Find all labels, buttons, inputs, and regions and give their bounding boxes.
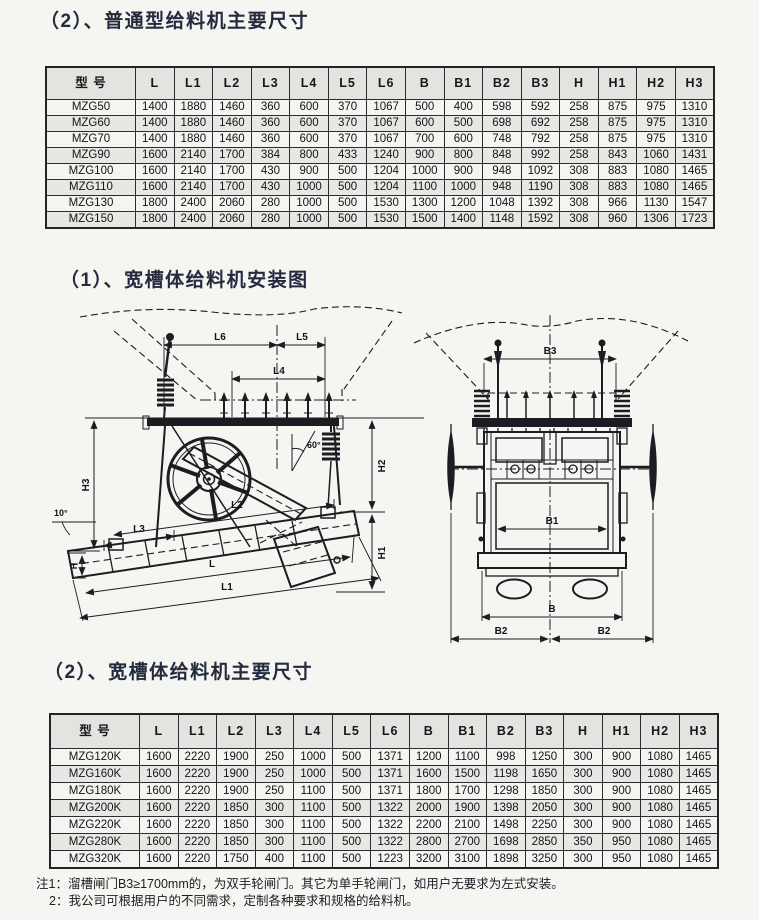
value-cell: 1000 (405, 164, 444, 180)
value-cell: 1465 (675, 180, 714, 196)
value-cell: 300 (255, 800, 294, 817)
value-cell: 1310 (675, 132, 714, 148)
value-cell: 1200 (409, 749, 448, 766)
value-cell: 308 (560, 196, 599, 212)
value-cell: 1100 (294, 851, 333, 869)
table-row: MZG280K160022201850300110050013222800270… (50, 834, 718, 851)
value-cell: 1130 (637, 196, 676, 212)
front-view: B3 (414, 315, 688, 643)
value-cell: 1298 (487, 783, 526, 800)
value-cell: 900 (602, 766, 641, 783)
column-header: L2 (217, 714, 256, 749)
column-header: B2 (483, 67, 522, 100)
value-cell: 1600 (409, 766, 448, 783)
value-cell: 1250 (525, 749, 564, 766)
dim-label-h: H (69, 563, 79, 570)
value-cell: 875 (598, 100, 637, 116)
value-cell: 3200 (409, 851, 448, 869)
value-cell: 948 (483, 180, 522, 196)
value-cell: 360 (251, 100, 290, 116)
value-cell: 792 (521, 132, 560, 148)
value-cell: 1600 (136, 148, 175, 164)
dim-label-l1: L1 (221, 582, 233, 593)
value-cell: 900 (602, 749, 641, 766)
value-cell: 258 (560, 100, 599, 116)
value-cell: 400 (255, 851, 294, 869)
value-cell: 1850 (217, 834, 256, 851)
base-and-feet (478, 553, 626, 599)
value-cell: 1465 (679, 800, 718, 817)
value-cell: 300 (564, 766, 603, 783)
value-cell: 1080 (641, 817, 680, 834)
column-header: L1 (178, 714, 217, 749)
value-cell: 1700 (213, 148, 252, 164)
value-cell: 1850 (217, 817, 256, 834)
angle-60-annotation: 60° (292, 431, 321, 471)
value-cell: 1080 (641, 800, 680, 817)
table-row: MZG160K160022201900250100050013711600150… (50, 766, 718, 783)
value-cell: 1600 (136, 164, 175, 180)
value-cell: 370 (328, 100, 367, 116)
footnotes: 注1：溜槽闸门B3≥1700mm的，为双手轮闸门。其它为单手轮闸门，如用户无要求… (36, 876, 759, 911)
table-row: MZG6014001880146036060037010676005006986… (46, 116, 714, 132)
value-cell: 1850 (525, 783, 564, 800)
value-cell: 1600 (140, 851, 179, 869)
value-cell: 1898 (487, 851, 526, 869)
table-row: MZG7014001880146036060037010677006007487… (46, 132, 714, 148)
value-cell: 1880 (174, 132, 213, 148)
value-cell: 875 (598, 132, 637, 148)
value-cell: 1500 (448, 766, 487, 783)
value-cell: 1600 (140, 766, 179, 783)
value-cell: 370 (328, 116, 367, 132)
value-cell: 300 (564, 851, 603, 869)
value-cell: 300 (564, 817, 603, 834)
value-cell: 1900 (217, 749, 256, 766)
value-cell: 950 (602, 851, 641, 869)
value-cell: 300 (564, 783, 603, 800)
angle-10-label: 10° (54, 508, 68, 518)
value-cell: 1900 (448, 800, 487, 817)
value-cell: 250 (255, 749, 294, 766)
value-cell: 350 (564, 834, 603, 851)
handwheel-left-front (447, 424, 484, 510)
value-cell: 992 (521, 148, 560, 164)
value-cell: 2220 (178, 749, 217, 766)
value-cell: 2400 (174, 196, 213, 212)
value-cell: 1080 (641, 749, 680, 766)
value-cell: 1000 (290, 180, 329, 196)
value-cell: 2850 (525, 834, 564, 851)
column-header: B3 (525, 714, 564, 749)
value-cell: 300 (564, 800, 603, 817)
table-row: MZG1301800240020602801000500153013001200… (46, 196, 714, 212)
value-cell: 300 (564, 749, 603, 766)
handwheel-right-front (620, 424, 657, 510)
value-cell: 2700 (448, 834, 487, 851)
value-cell: 1500 (405, 212, 444, 229)
value-cell: 1080 (637, 164, 676, 180)
model-cell: MZG320K (50, 851, 140, 869)
value-cell: 500 (332, 817, 371, 834)
value-cell: 1400 (136, 100, 175, 116)
table-row: MZG220K160022201850300110050013222200210… (50, 817, 718, 834)
value-cell: 1100 (294, 800, 333, 817)
value-cell: 843 (598, 148, 637, 164)
note-line-2: 2：我公司可根据用户的不同需求，定制各种要求和规格的给料机。 (49, 893, 759, 910)
value-cell: 950 (602, 834, 641, 851)
angle-60-label: 60° (307, 440, 321, 450)
value-cell: 698 (483, 116, 522, 132)
suspension-spring-left (157, 333, 174, 418)
dim-label-l6: L6 (214, 332, 226, 343)
side-dimension-lines: H3 H2 H1 H 10° (52, 421, 388, 621)
value-cell: 900 (602, 783, 641, 800)
value-cell: 2400 (174, 212, 213, 229)
value-cell: 1100 (294, 783, 333, 800)
table-row: MZG1101600214017004301000500120411001000… (46, 180, 714, 196)
value-cell: 370 (328, 132, 367, 148)
value-cell: 1600 (140, 800, 179, 817)
value-cell: 1092 (521, 164, 560, 180)
value-cell: 384 (251, 148, 290, 164)
value-cell: 1600 (140, 783, 179, 800)
value-cell: 598 (483, 100, 522, 116)
model-cell: MZG220K (50, 817, 140, 834)
value-cell: 900 (602, 800, 641, 817)
value-cell: 800 (290, 148, 329, 164)
value-cell: 300 (255, 817, 294, 834)
value-cell: 1900 (217, 766, 256, 783)
value-cell: 1592 (521, 212, 560, 229)
value-cell: 1800 (136, 212, 175, 229)
value-cell: 975 (637, 132, 676, 148)
value-cell: 308 (560, 212, 599, 229)
dim-label-l5: L5 (296, 332, 308, 343)
value-cell: 1300 (405, 196, 444, 212)
value-cell: 280 (251, 212, 290, 229)
value-cell: 1400 (136, 132, 175, 148)
column-header: H (560, 67, 599, 100)
value-cell: 1200 (444, 196, 483, 212)
column-header: H3 (679, 714, 718, 749)
value-cell: 1392 (521, 196, 560, 212)
value-cell: 883 (598, 164, 637, 180)
value-cell: 975 (637, 116, 676, 132)
value-cell: 500 (444, 116, 483, 132)
value-cell: 1310 (675, 116, 714, 132)
value-cell: 500 (332, 766, 371, 783)
value-cell: 1100 (448, 749, 487, 766)
value-cell: 1530 (367, 212, 406, 229)
value-cell: 430 (251, 164, 290, 180)
table-row: MZG120K160022201900250100050013711200110… (50, 749, 718, 766)
table-row: MZG9016002140170038480043312409008008489… (46, 148, 714, 164)
value-cell: 1465 (679, 749, 718, 766)
column-header: L4 (294, 714, 333, 749)
mounting-plate-front (472, 418, 632, 432)
value-cell: 280 (251, 196, 290, 212)
dim-label-b: B (548, 604, 555, 615)
column-header: 型 号 (46, 67, 136, 100)
value-cell: 2250 (525, 817, 564, 834)
column-header: H3 (675, 67, 714, 100)
value-cell: 1880 (174, 100, 213, 116)
value-cell: 250 (255, 783, 294, 800)
value-cell: 2220 (178, 766, 217, 783)
value-cell: 1198 (487, 766, 526, 783)
value-cell: 1750 (217, 851, 256, 869)
dim-label-b3: B3 (544, 346, 557, 357)
value-cell: 500 (328, 212, 367, 229)
model-cell: MZG60 (46, 116, 136, 132)
value-cell: 1060 (637, 148, 676, 164)
value-cell: 500 (332, 834, 371, 851)
value-cell: 1000 (290, 196, 329, 212)
table-row: MZG1001600214017004309005001204100090094… (46, 164, 714, 180)
model-cell: MZG50 (46, 100, 136, 116)
value-cell: 1080 (641, 834, 680, 851)
column-header: L1 (174, 67, 213, 100)
value-cell: 500 (328, 196, 367, 212)
value-cell: 2140 (174, 164, 213, 180)
dim-label-b1: B1 (546, 516, 559, 527)
b2-dimensions: B2 B2 (451, 513, 653, 643)
column-header: L4 (290, 67, 329, 100)
value-cell: 848 (483, 148, 522, 164)
ordinary-feeder-dimensions-table: 型 号LL1L2L3L4L5L6BB1B2B3HH1H2H3MZG5014001… (45, 66, 715, 229)
column-header: B3 (521, 67, 560, 100)
value-cell: 2220 (178, 851, 217, 869)
value-cell: 500 (328, 164, 367, 180)
value-cell: 250 (255, 766, 294, 783)
value-cell: 1465 (679, 766, 718, 783)
model-cell: MZG180K (50, 783, 140, 800)
value-cell: 1700 (448, 783, 487, 800)
wide-trough-feeder-dimensions-table: 型 号LL1L2L3L4L5L6BB1B2B3HH1H2H3MZG120K160… (49, 713, 719, 869)
value-cell: 308 (560, 164, 599, 180)
value-cell: 1880 (174, 116, 213, 132)
value-cell: 600 (444, 132, 483, 148)
value-cell: 1100 (405, 180, 444, 196)
value-cell: 1204 (367, 180, 406, 196)
value-cell: 1700 (213, 164, 252, 180)
value-cell: 2000 (409, 800, 448, 817)
value-cell: 1204 (367, 164, 406, 180)
value-cell: 1398 (487, 800, 526, 817)
value-cell: 592 (521, 100, 560, 116)
value-cell: 2140 (174, 180, 213, 196)
value-cell: 300 (255, 834, 294, 851)
value-cell: 360 (251, 116, 290, 132)
dim-label-l4: L4 (273, 366, 285, 377)
value-cell: 1306 (637, 212, 676, 229)
value-cell: 308 (560, 180, 599, 196)
value-cell: 2220 (178, 817, 217, 834)
value-cell: 2100 (448, 817, 487, 834)
value-cell: 1460 (213, 100, 252, 116)
value-cell: 900 (290, 164, 329, 180)
column-header: H1 (598, 67, 637, 100)
dim-label-l: L (209, 559, 215, 570)
value-cell: 2220 (178, 783, 217, 800)
value-cell: 2220 (178, 834, 217, 851)
dim-label-h2: H2 (377, 459, 388, 472)
value-cell: 960 (598, 212, 637, 229)
column-header: B (405, 67, 444, 100)
column-header: H1 (602, 714, 641, 749)
header-row: 型 号LL1L2L3L4L5L6BB1B2B3HH1H2H3 (50, 714, 718, 749)
model-cell: MZG150 (46, 212, 136, 229)
section-title-installation-diagram: （1）、宽槽体给料机安装图 (0, 229, 759, 293)
dim-label-b2-right: B2 (598, 626, 611, 637)
value-cell: 1400 (444, 212, 483, 229)
value-cell: 1371 (371, 749, 410, 766)
discharge-chute (274, 527, 340, 587)
value-cell: 1465 (679, 851, 718, 869)
header-row: 型 号LL1L2L3L4L5L6BB1B2B3HH1H2H3 (46, 67, 714, 100)
value-cell: 1000 (294, 766, 333, 783)
dim-label-b2-left: B2 (495, 626, 508, 637)
column-header: L3 (255, 714, 294, 749)
value-cell: 1498 (487, 817, 526, 834)
value-cell: 883 (598, 180, 637, 196)
value-cell: 1240 (367, 148, 406, 164)
value-cell: 1322 (371, 834, 410, 851)
column-header: H2 (641, 714, 680, 749)
value-cell: 1310 (675, 100, 714, 116)
column-header: B (409, 714, 448, 749)
b3-dimension: B3 (484, 346, 616, 393)
value-cell: 1067 (367, 100, 406, 116)
value-cell: 875 (598, 116, 637, 132)
value-cell: 1850 (217, 800, 256, 817)
value-cell: 430 (251, 180, 290, 196)
value-cell: 1148 (483, 212, 522, 229)
model-cell: MZG110 (46, 180, 136, 196)
feeder-body-front (448, 432, 656, 553)
catalog-page: （2）、普通型给料机主要尺寸 型 号LL1L2L3L4L5L6BB1B2B3HH… (0, 0, 759, 920)
model-cell: MZG120K (50, 749, 140, 766)
model-cell: MZG90 (46, 148, 136, 164)
value-cell: 1000 (444, 180, 483, 196)
value-cell: 500 (332, 783, 371, 800)
value-cell: 1650 (525, 766, 564, 783)
value-cell: 800 (444, 148, 483, 164)
value-cell: 1530 (367, 196, 406, 212)
value-cell: 258 (560, 148, 599, 164)
value-cell: 1067 (367, 132, 406, 148)
value-cell: 600 (290, 132, 329, 148)
column-header: L5 (328, 67, 367, 100)
value-cell: 1080 (637, 180, 676, 196)
model-cell: MZG130 (46, 196, 136, 212)
value-cell: 900 (405, 148, 444, 164)
value-cell: 2220 (178, 800, 217, 817)
value-cell: 1000 (294, 749, 333, 766)
dim-label-l2: L2 (231, 500, 243, 511)
column-header: H2 (637, 67, 676, 100)
value-cell: 3250 (525, 851, 564, 869)
value-cell: 1322 (371, 817, 410, 834)
value-cell: 1723 (675, 212, 714, 229)
column-header: L3 (251, 67, 290, 100)
model-cell: MZG200K (50, 800, 140, 817)
mounting-plate-side (85, 416, 424, 429)
dim-label-h3: H3 (81, 478, 92, 491)
value-cell: 1600 (136, 180, 175, 196)
value-cell: 998 (487, 749, 526, 766)
value-cell: 2050 (525, 800, 564, 817)
value-cell: 500 (328, 180, 367, 196)
value-cell: 1080 (641, 783, 680, 800)
column-header: L2 (213, 67, 252, 100)
value-cell: 1048 (483, 196, 522, 212)
value-cell: 900 (444, 164, 483, 180)
b1-dimension: B1 (498, 516, 606, 529)
value-cell: 900 (602, 817, 641, 834)
value-cell: 2140 (174, 148, 213, 164)
model-cell: MZG70 (46, 132, 136, 148)
column-header: L (140, 714, 179, 749)
column-header: B1 (444, 67, 483, 100)
note-line-1: 注1：溜槽闸门B3≥1700mm的，为双手轮闸门。其它为单手轮闸门，如用户无要求… (36, 876, 759, 893)
hopper-outline-side (80, 307, 402, 469)
value-cell: 600 (290, 116, 329, 132)
value-cell: 500 (332, 851, 371, 869)
value-cell: 1067 (367, 116, 406, 132)
value-cell: 600 (290, 100, 329, 116)
column-header: B2 (487, 714, 526, 749)
value-cell: 1800 (409, 783, 448, 800)
value-cell: 2060 (213, 212, 252, 229)
value-cell: 1322 (371, 800, 410, 817)
value-cell: 258 (560, 132, 599, 148)
value-cell: 1100 (294, 834, 333, 851)
value-cell: 500 (332, 749, 371, 766)
value-cell: 258 (560, 116, 599, 132)
column-header: L6 (367, 67, 406, 100)
value-cell: 1465 (679, 817, 718, 834)
column-header: L6 (371, 714, 410, 749)
value-cell: 1600 (140, 749, 179, 766)
value-cell: 1600 (140, 834, 179, 851)
value-cell: 1371 (371, 783, 410, 800)
value-cell: 1460 (213, 116, 252, 132)
dim-label-h1: H1 (377, 546, 388, 559)
value-cell: 1460 (213, 132, 252, 148)
value-cell: 500 (405, 100, 444, 116)
installation-diagram: L6 L5 L4 (52, 301, 717, 649)
value-cell: 1000 (290, 212, 329, 229)
column-header: L (136, 67, 175, 100)
column-header: L5 (332, 714, 371, 749)
value-cell: 433 (328, 148, 367, 164)
value-cell: 1698 (487, 834, 526, 851)
model-cell: MZG280K (50, 834, 140, 851)
value-cell: 1080 (641, 766, 680, 783)
section-title-ordinary-dims: （2）、普通型给料机主要尺寸 (0, 0, 759, 34)
installation-diagram-svg: L6 L5 L4 (52, 301, 717, 649)
table-row: MZG5014001880146036060037010675004005985… (46, 100, 714, 116)
value-cell: 2800 (409, 834, 448, 851)
table-row: MZG180K160022201900250110050013711800170… (50, 783, 718, 800)
value-cell: 1223 (371, 851, 410, 869)
value-cell: 966 (598, 196, 637, 212)
value-cell: 1465 (679, 783, 718, 800)
value-cell: 1700 (213, 180, 252, 196)
value-cell: 2060 (213, 196, 252, 212)
